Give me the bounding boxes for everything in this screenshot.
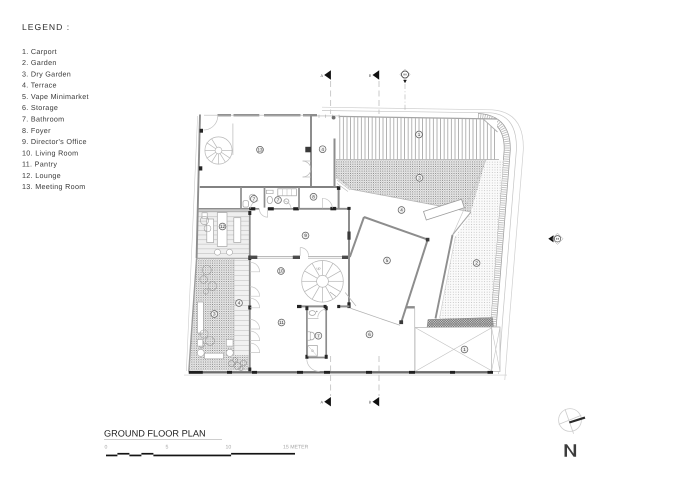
svg-text:13: 13 (257, 148, 263, 153)
svg-text:LEGEND :: LEGEND : (22, 22, 70, 32)
svg-text:4: 4 (321, 147, 324, 152)
svg-text:5. Vape Minimarket: 5. Vape Minimarket (22, 92, 89, 101)
svg-text:13. Meeting Room: 13. Meeting Room (22, 182, 86, 191)
svg-text:1. Carport: 1. Carport (22, 47, 57, 56)
svg-text:8. Foyer: 8. Foyer (22, 126, 51, 135)
svg-text:GROUND FLOOR PLAN: GROUND FLOOR PLAN (104, 429, 206, 439)
svg-text:6: 6 (368, 332, 371, 337)
svg-text:up: up (317, 267, 321, 271)
svg-text:9: 9 (304, 233, 307, 238)
svg-text:10: 10 (226, 445, 232, 451)
svg-text:12: 12 (220, 224, 226, 229)
svg-text:5: 5 (386, 258, 389, 263)
svg-text:A: A (320, 74, 323, 78)
svg-text:11: 11 (279, 320, 284, 325)
svg-text:4. Terrace: 4. Terrace (22, 81, 57, 90)
svg-text:8: 8 (312, 195, 315, 200)
svg-text:7: 7 (277, 198, 280, 203)
svg-text:10. Living Room: 10. Living Room (22, 148, 78, 157)
svg-text:7. Bathroom: 7. Bathroom (22, 115, 64, 124)
svg-text:A: A (320, 401, 323, 405)
svg-text:4: 4 (400, 208, 403, 213)
svg-text:3: 3 (213, 312, 216, 317)
svg-text:6. Storage: 6. Storage (22, 103, 58, 112)
svg-text:1: 1 (418, 132, 421, 137)
svg-text:9. Director's Office: 9. Director's Office (22, 137, 87, 146)
svg-text:2. Garden: 2. Garden (22, 58, 57, 67)
svg-text:15 METER: 15 METER (283, 445, 309, 451)
svg-text:3. Dry Garden: 3. Dry Garden (22, 69, 71, 78)
svg-text:B: B (369, 401, 372, 405)
svg-text:2: 2 (475, 261, 478, 266)
svg-text:3: 3 (418, 176, 421, 181)
svg-text:10: 10 (278, 269, 284, 274)
svg-text:B: B (369, 74, 372, 78)
svg-text:1: 1 (463, 347, 466, 352)
svg-text:0: 0 (105, 445, 108, 451)
svg-text:5: 5 (166, 445, 169, 451)
svg-text:12. Lounge: 12. Lounge (22, 171, 61, 180)
svg-text:7: 7 (317, 333, 320, 338)
svg-text:7: 7 (253, 197, 256, 202)
svg-text:4: 4 (238, 301, 241, 306)
svg-text:11. Pantry: 11. Pantry (22, 160, 57, 169)
